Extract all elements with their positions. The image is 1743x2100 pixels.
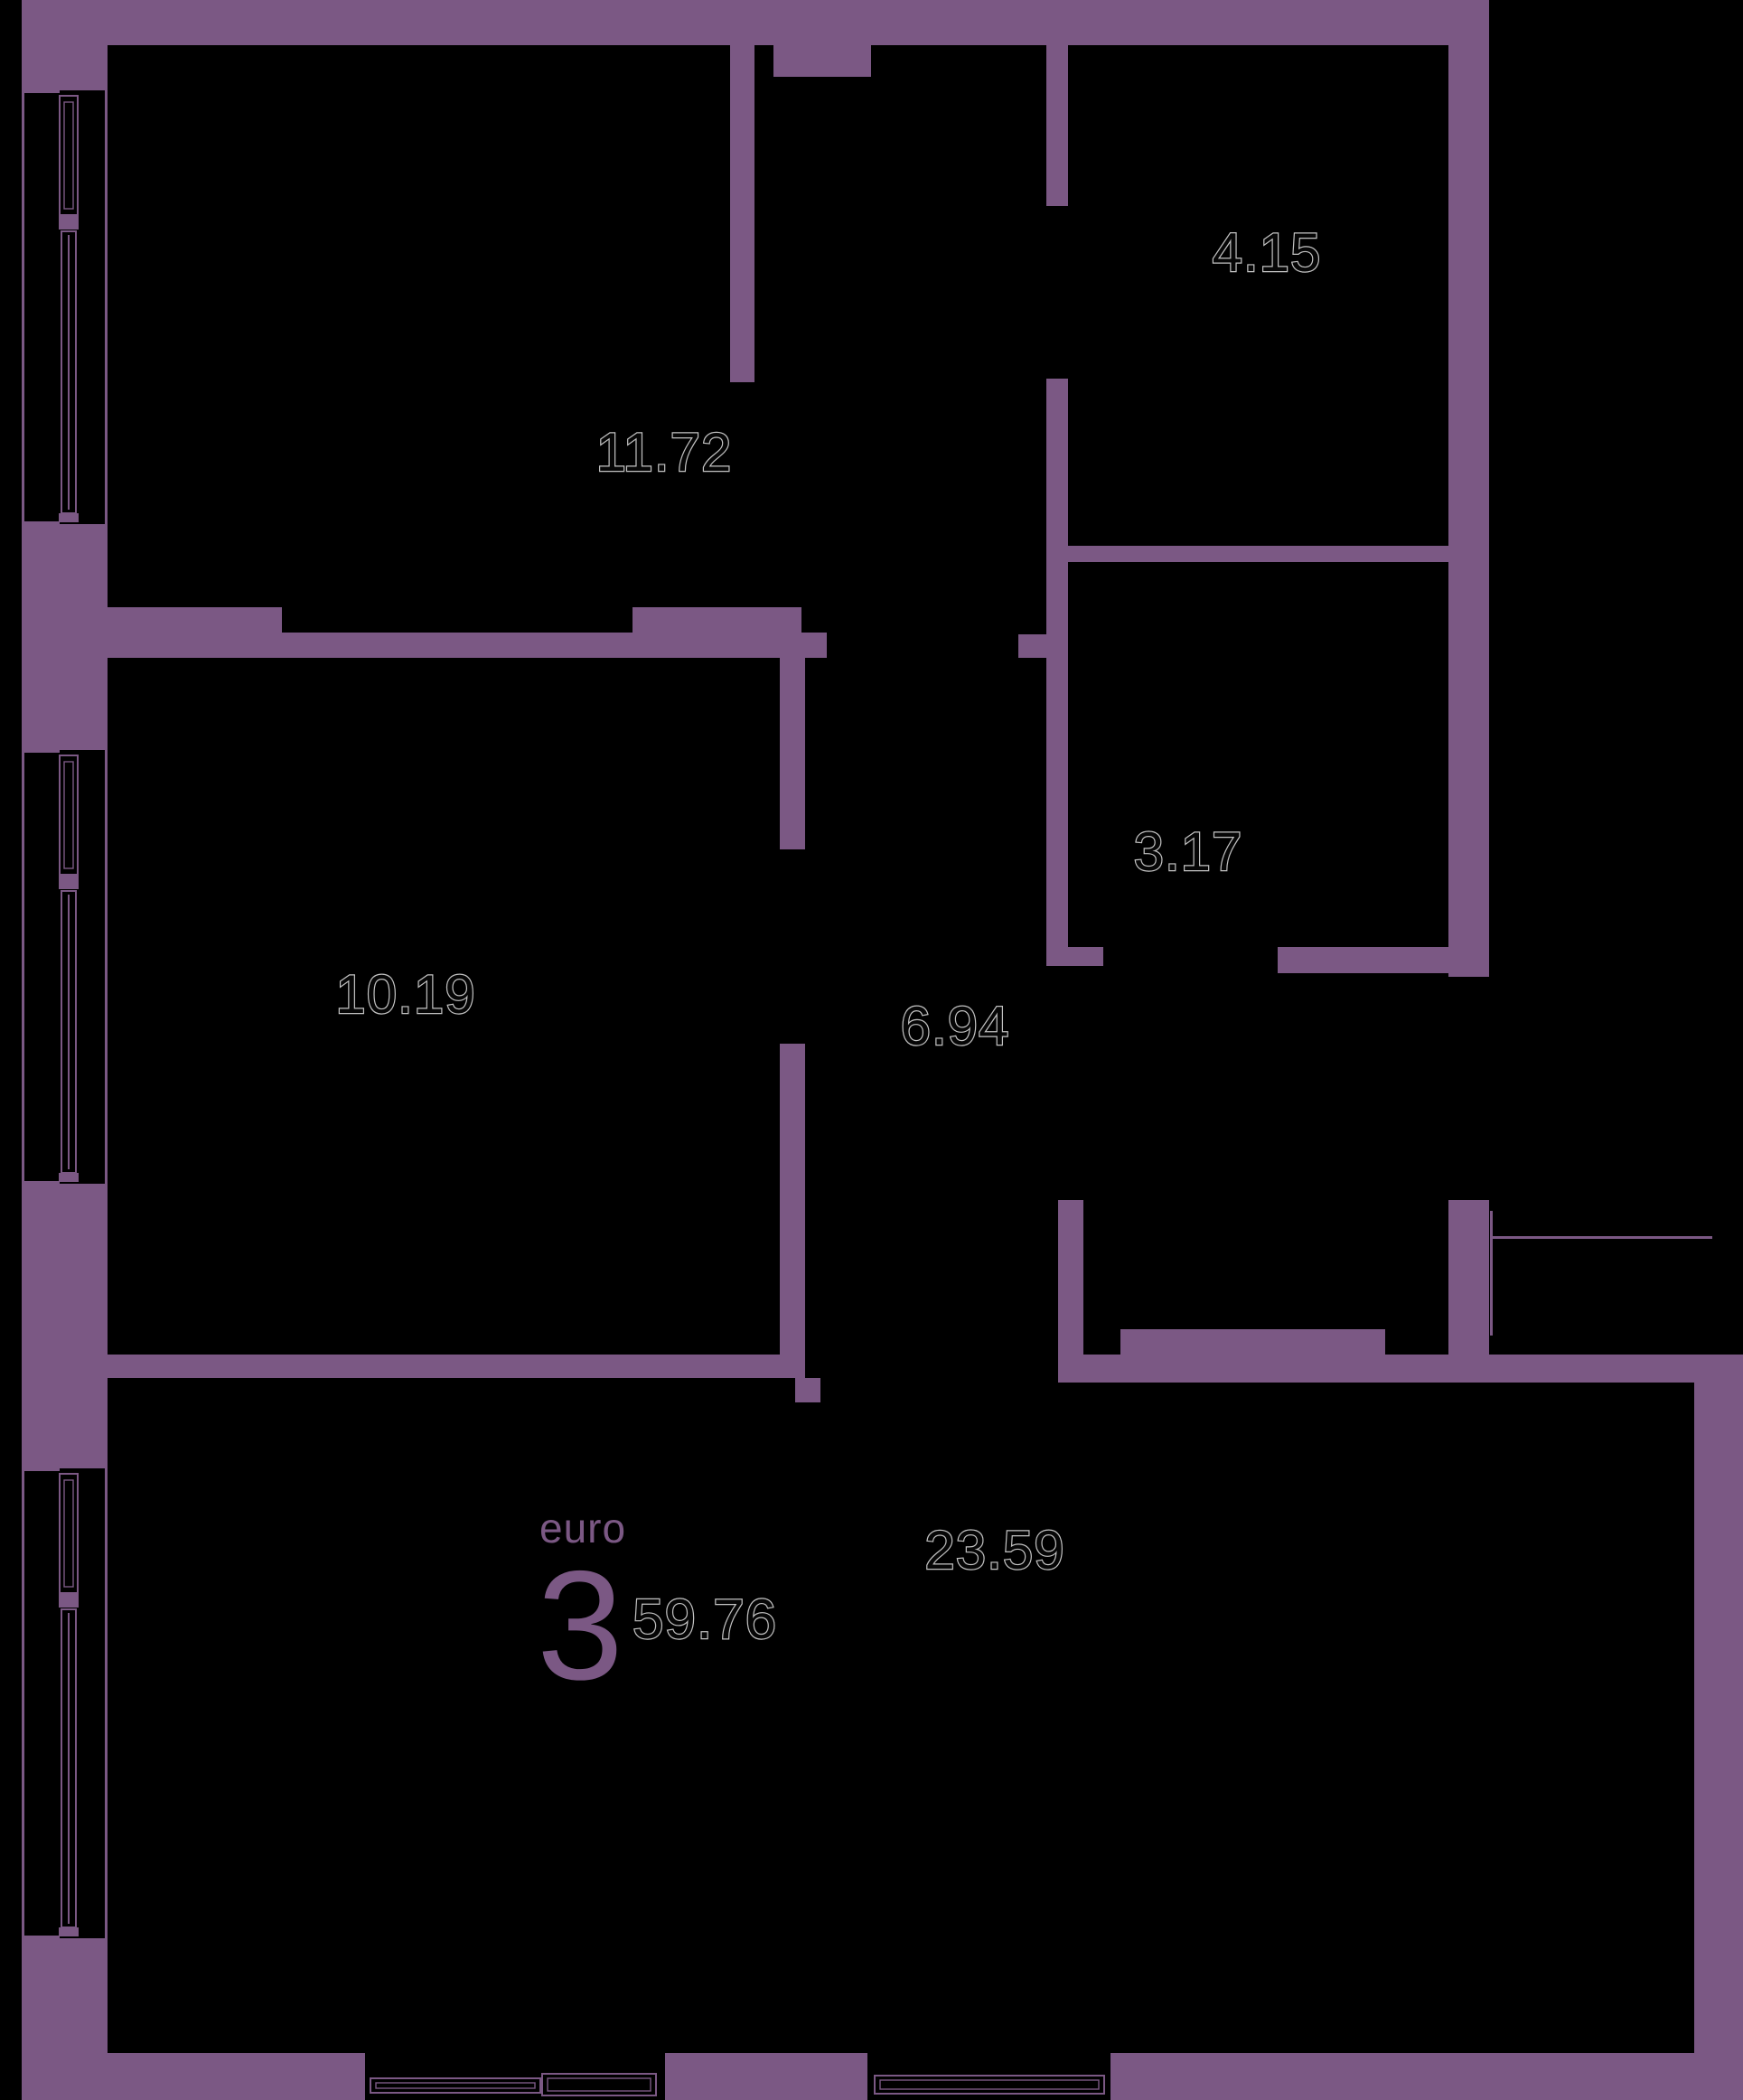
bay1-inner-line xyxy=(105,90,108,524)
wall-w2-left xyxy=(101,1355,801,1378)
floor-plan-svg: 11.72 4.15 3.17 10.19 6.94 23.59 euro 3 … xyxy=(0,0,1743,2100)
wall-stub-right xyxy=(1448,1200,1489,1355)
floor-plan-page: 11.72 4.15 3.17 10.19 6.94 23.59 euro 3 … xyxy=(0,0,1743,2100)
badge-total-area: 59.76 xyxy=(633,1589,777,1651)
wall-west-pier-1 xyxy=(22,524,108,750)
wall-v1-room-top-left xyxy=(730,45,754,382)
wall-w4-bath-bottom xyxy=(1278,947,1448,973)
wall-west-corner-block xyxy=(22,1938,108,2100)
bay2-inner-line xyxy=(105,750,108,1184)
bay2-bottom-connector xyxy=(59,1173,79,1182)
entry-landing-line xyxy=(1490,1236,1712,1239)
bay1-outer-line xyxy=(22,90,24,524)
wall-w2-right xyxy=(1058,1355,1712,1383)
window-bay-2 xyxy=(22,750,108,1184)
window-bay-1 xyxy=(22,90,108,524)
bay3-bottom-cap xyxy=(22,1936,60,1938)
wall-top-left-block xyxy=(22,0,108,90)
bay1-casement-icon xyxy=(60,96,78,215)
wall-v3-jamb xyxy=(1018,634,1046,658)
bay2-casement-icon xyxy=(60,755,78,875)
badge-rooms-count: 3 xyxy=(537,1539,623,1712)
wall-w1-right xyxy=(633,607,801,658)
outer-walls xyxy=(22,0,1743,2100)
wall-w1-jamb xyxy=(801,633,827,658)
wall-v2-upper xyxy=(780,658,805,849)
bay2-connector xyxy=(59,875,79,889)
bay2-casement-inner xyxy=(64,762,73,868)
bay1-casement-inner xyxy=(64,102,73,209)
bay2-window-mullion xyxy=(68,895,70,1169)
room-area-living: 23.59 xyxy=(924,1520,1064,1580)
bay1-connector xyxy=(59,215,79,230)
bay3-bottom-connector xyxy=(59,1927,79,1936)
wall-east-lower xyxy=(1694,1355,1743,2078)
apartment-badge: euro 3 59.76 xyxy=(537,1505,777,1712)
wall-w1-left xyxy=(101,607,282,658)
bay3-casement-inner xyxy=(64,1480,73,1587)
wall-v3-lower xyxy=(1046,379,1068,966)
bay3-window-mullion xyxy=(68,1613,70,1924)
bay1-top-cap xyxy=(22,90,60,93)
wall-stub-left xyxy=(1058,1200,1083,1355)
bay3-outer-line xyxy=(22,1468,24,1938)
wall-east-upper xyxy=(1448,0,1489,977)
room-area-top-right: 4.15 xyxy=(1213,222,1322,283)
bay2-outer-line xyxy=(22,750,24,1184)
wall-w2-right-bump xyxy=(1120,1329,1385,1355)
bay2-top-cap xyxy=(22,750,60,753)
wall-top-mid-pier xyxy=(773,0,871,77)
bay3-inner-line xyxy=(105,1468,108,1938)
entry-door-line xyxy=(1490,1211,1493,1336)
bay3-top-cap xyxy=(22,1468,60,1471)
bay2-bottom-cap xyxy=(22,1181,60,1184)
room-area-hallway: 6.94 xyxy=(901,996,1010,1056)
wall-v2-lower xyxy=(780,1044,805,1378)
wall-v2-nub xyxy=(795,1378,820,1402)
wall-w3-divider xyxy=(1068,546,1448,562)
wall-top-band xyxy=(22,0,1489,45)
room-area-mid-right: 3.17 xyxy=(1134,821,1243,882)
wall-v3-upper xyxy=(1046,45,1068,206)
bay1-bottom-cap xyxy=(22,521,60,524)
wall-w1-mid xyxy=(282,633,633,658)
room-area-mid-left: 10.19 xyxy=(335,964,475,1025)
window-bay-3 xyxy=(22,1468,108,1938)
wall-v3-foot xyxy=(1046,947,1103,966)
wall-west-pier-2 xyxy=(22,1184,108,1468)
bay3-connector xyxy=(59,1593,79,1608)
bay1-bottom-connector xyxy=(59,513,79,522)
bay1-window-mullion xyxy=(68,235,70,510)
bay3-casement-icon xyxy=(60,1474,78,1593)
room-area-top-left: 11.72 xyxy=(596,422,733,483)
